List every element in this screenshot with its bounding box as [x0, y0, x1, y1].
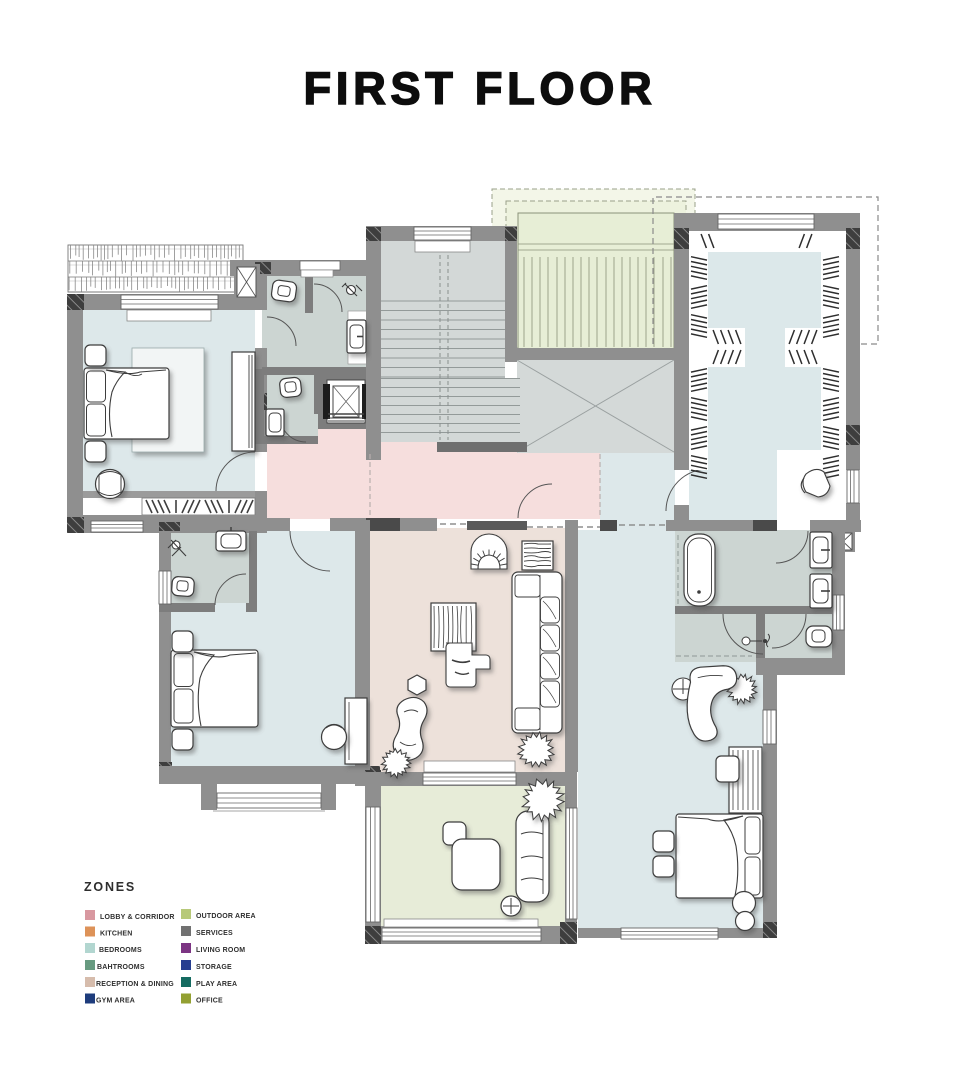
svg-text:LIVING ROOM: LIVING ROOM: [196, 947, 245, 954]
svg-text:FIRST FLOOR: FIRST FLOOR: [304, 63, 657, 114]
svg-text:SERVICES: SERVICES: [196, 930, 233, 937]
svg-text:OFFICE: OFFICE: [196, 998, 223, 1005]
svg-text:ZONES: ZONES: [84, 880, 136, 894]
svg-text:BAHTROOMS: BAHTROOMS: [97, 964, 145, 971]
svg-text:BEDROOMS: BEDROOMS: [99, 947, 142, 954]
svg-text:GYM AREA: GYM AREA: [96, 998, 135, 1005]
svg-text:STORAGE: STORAGE: [196, 964, 232, 971]
svg-text:KITCHEN: KITCHEN: [100, 931, 133, 938]
svg-text:RECEPTION & DINING: RECEPTION & DINING: [96, 981, 174, 988]
svg-text:PLAY AREA: PLAY AREA: [196, 981, 237, 988]
svg-text:OUTDOOR AREA: OUTDOOR AREA: [196, 913, 256, 920]
svg-text:LOBBY & CORRIDOR: LOBBY & CORRIDOR: [100, 914, 175, 921]
